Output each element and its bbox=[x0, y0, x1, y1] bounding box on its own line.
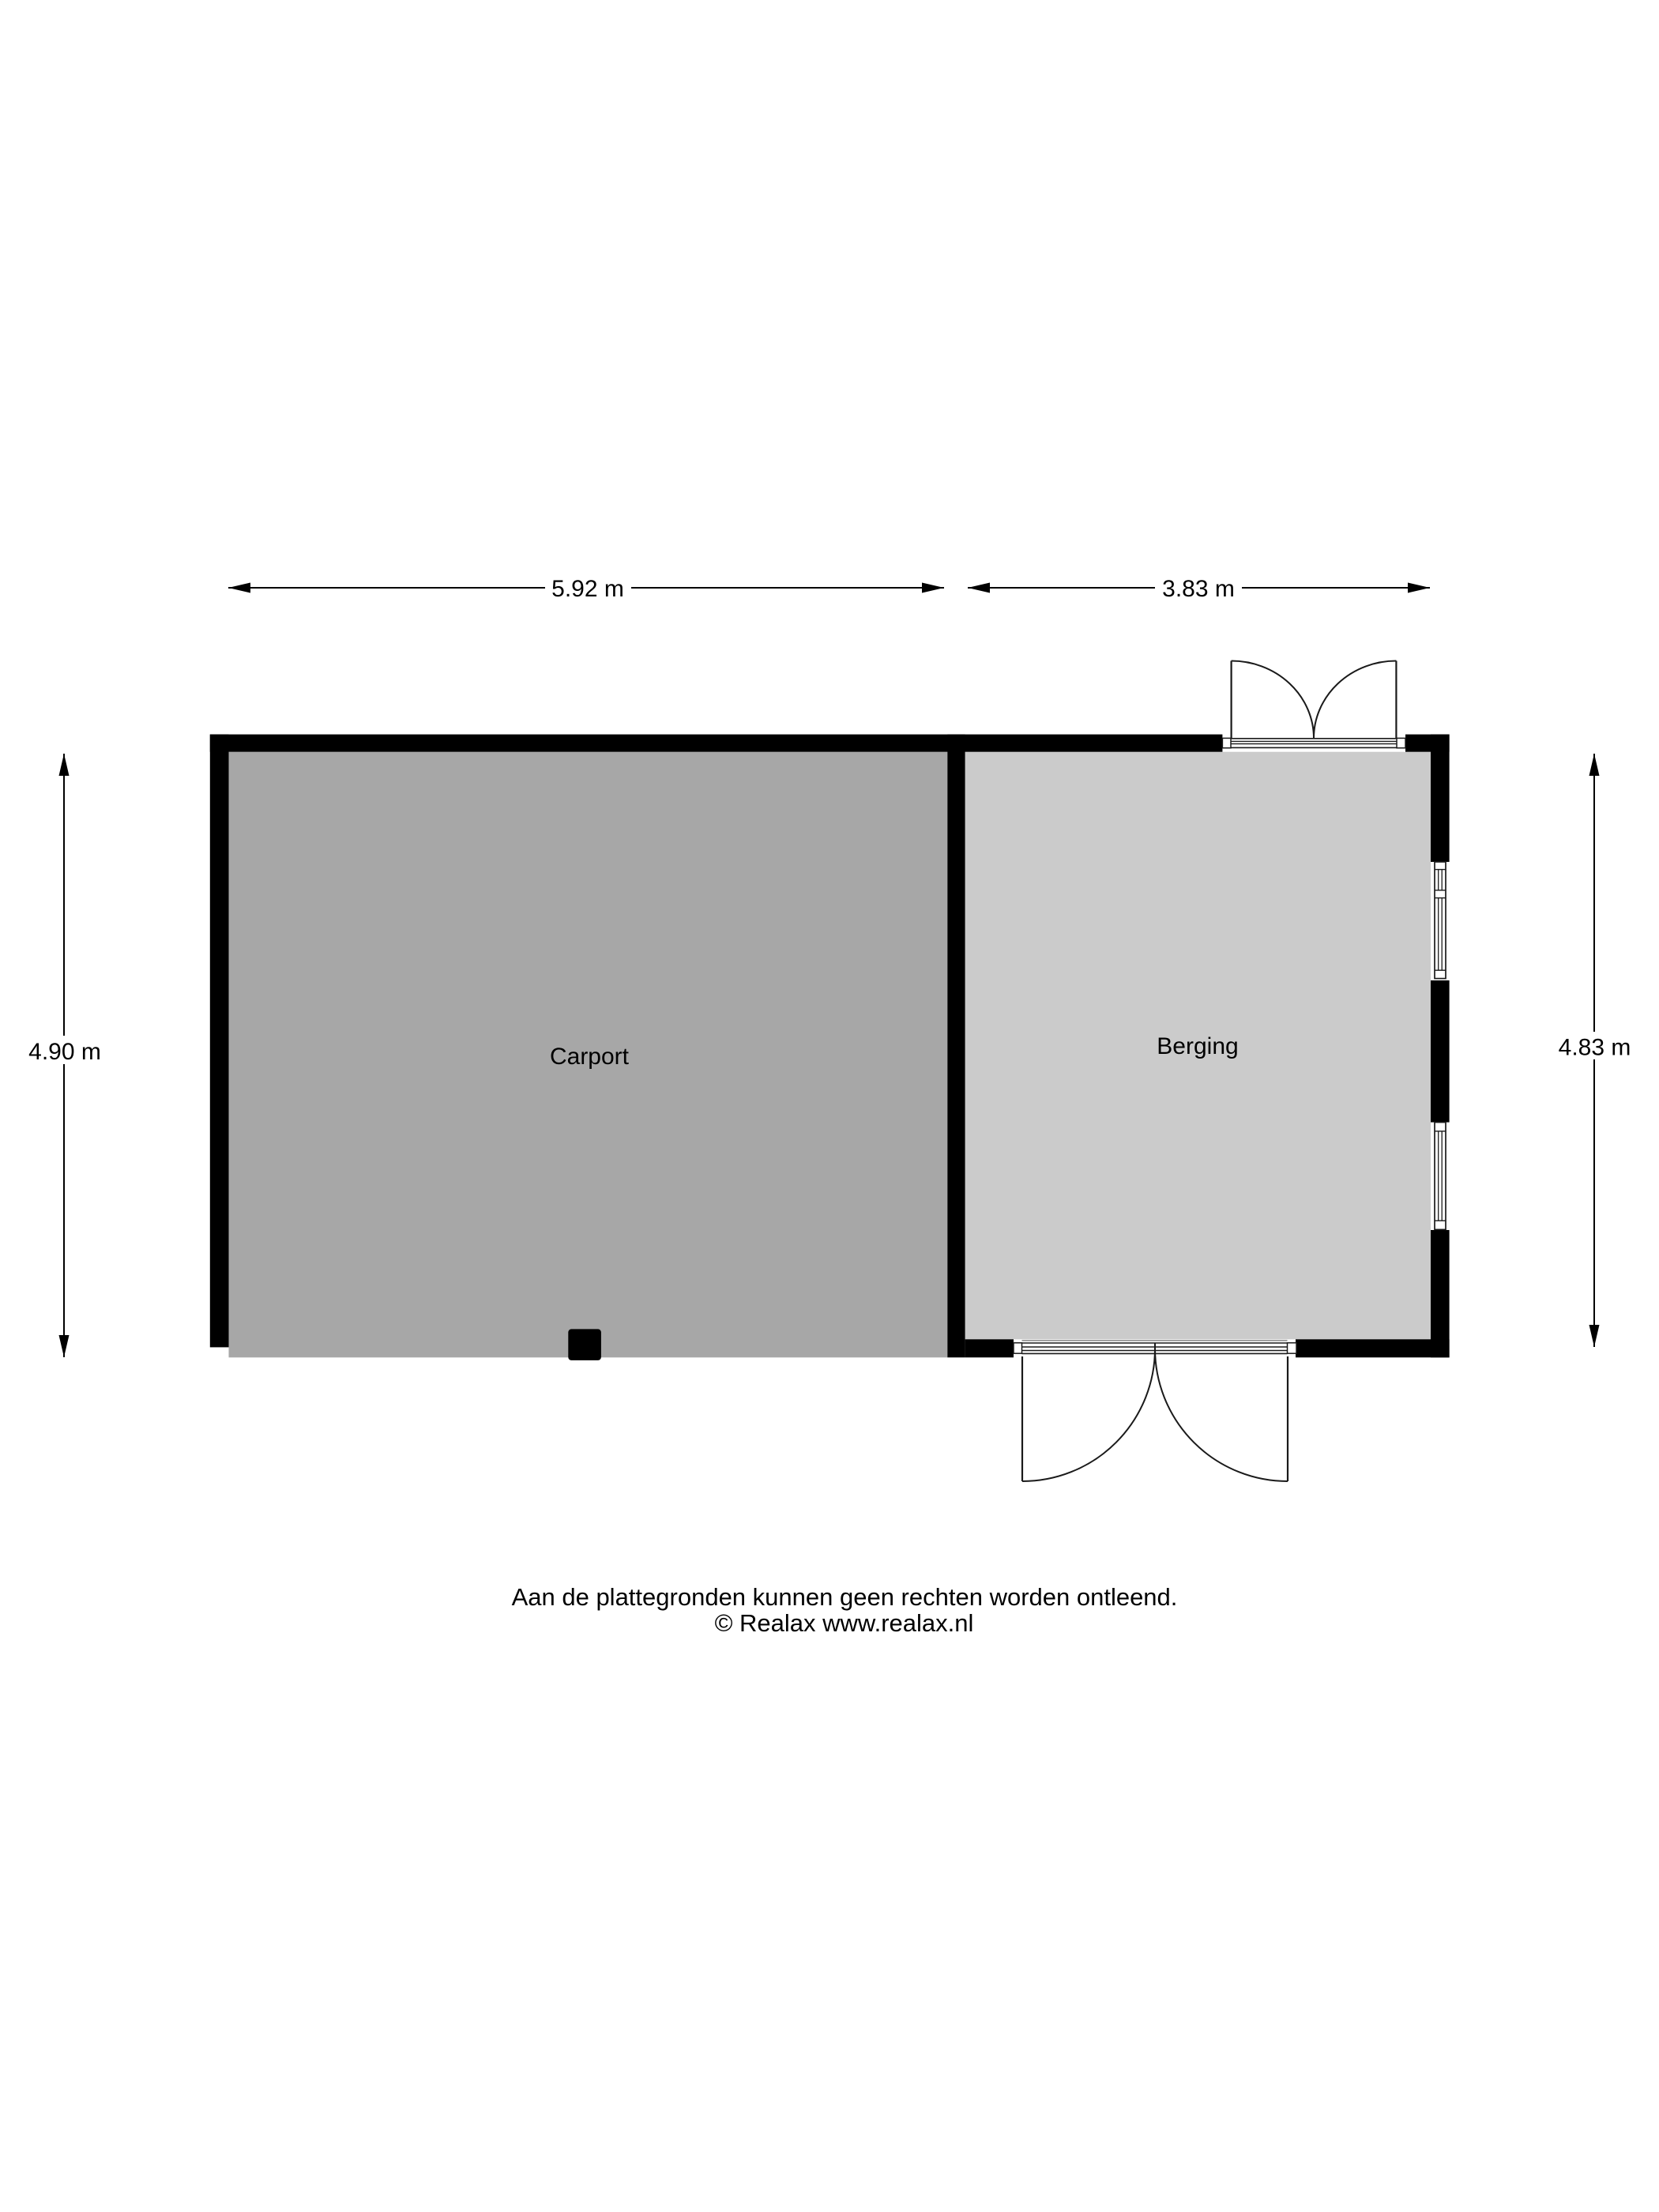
svg-text:5.92 m: 5.92 m bbox=[551, 576, 624, 602]
svg-text:Aan de plattegronden kunnen ge: Aan de plattegronden kunnen geen rechten… bbox=[512, 1583, 1178, 1611]
svg-text:© Realax www.realax.nl: © Realax www.realax.nl bbox=[715, 1609, 974, 1637]
svg-text:3.83 m: 3.83 m bbox=[1162, 576, 1235, 602]
svg-text:Carport: Carport bbox=[550, 1044, 630, 1070]
svg-text:4.83 m: 4.83 m bbox=[1559, 1035, 1631, 1061]
svg-text:4.90 m: 4.90 m bbox=[28, 1039, 101, 1065]
svg-text:Berging: Berging bbox=[1157, 1033, 1238, 1059]
